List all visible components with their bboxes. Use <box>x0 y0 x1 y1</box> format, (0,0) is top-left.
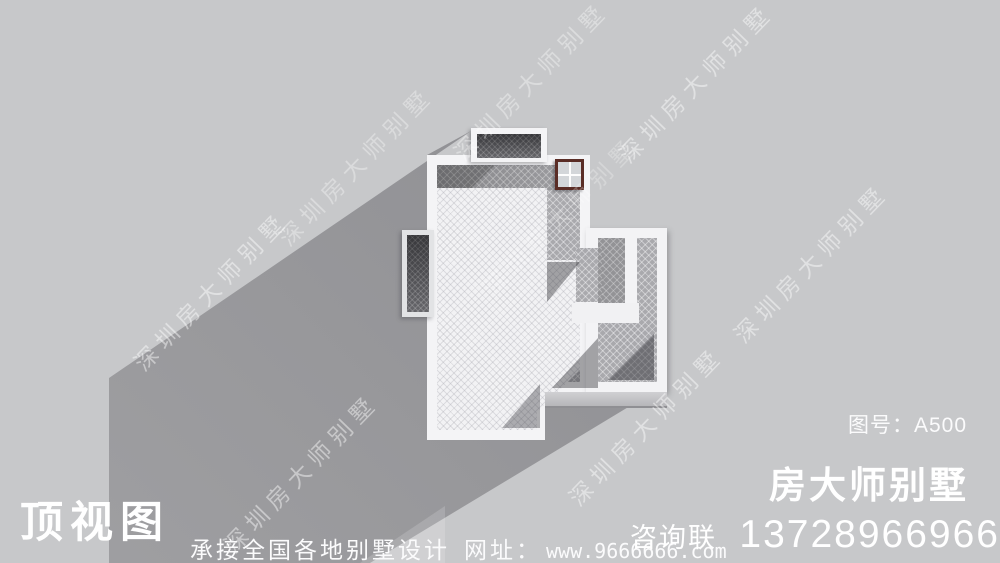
wing-well-shadow <box>598 238 627 304</box>
drawing-number-value: A500 <box>914 414 967 437</box>
inner-parapet-ledge <box>572 303 639 323</box>
view-title: 顶视图 <box>20 488 170 550</box>
skylight-pane <box>558 176 569 188</box>
roof-box-left-well <box>407 235 429 312</box>
footer-website-label: 网址： <box>464 531 542 563</box>
footer-services-text: 承接全国各地别墅设计 <box>190 531 450 563</box>
drawing-number: 图号：A500 <box>848 409 967 439</box>
front-wall-face <box>545 392 667 408</box>
skylight-pane <box>571 176 582 188</box>
roof-box-top-well <box>477 134 541 158</box>
footer-contact-line: 咨询联系： 13728966966 <box>630 513 1000 563</box>
contact-label: 咨询联系： <box>630 516 731 563</box>
contact-phone-number: 13728966966 <box>739 513 1000 557</box>
skylight-pane <box>558 162 569 174</box>
drawing-number-label: 图号： <box>848 414 914 437</box>
brand-name: 房大师别墅 <box>769 455 969 509</box>
skylight-window <box>555 159 584 190</box>
render-canvas: 深圳房大师别墅 深圳房大师别墅 深圳房大师别墅 深圳房大师别墅 深圳房大师别墅 … <box>0 0 1000 563</box>
skylight-pane <box>571 162 582 174</box>
